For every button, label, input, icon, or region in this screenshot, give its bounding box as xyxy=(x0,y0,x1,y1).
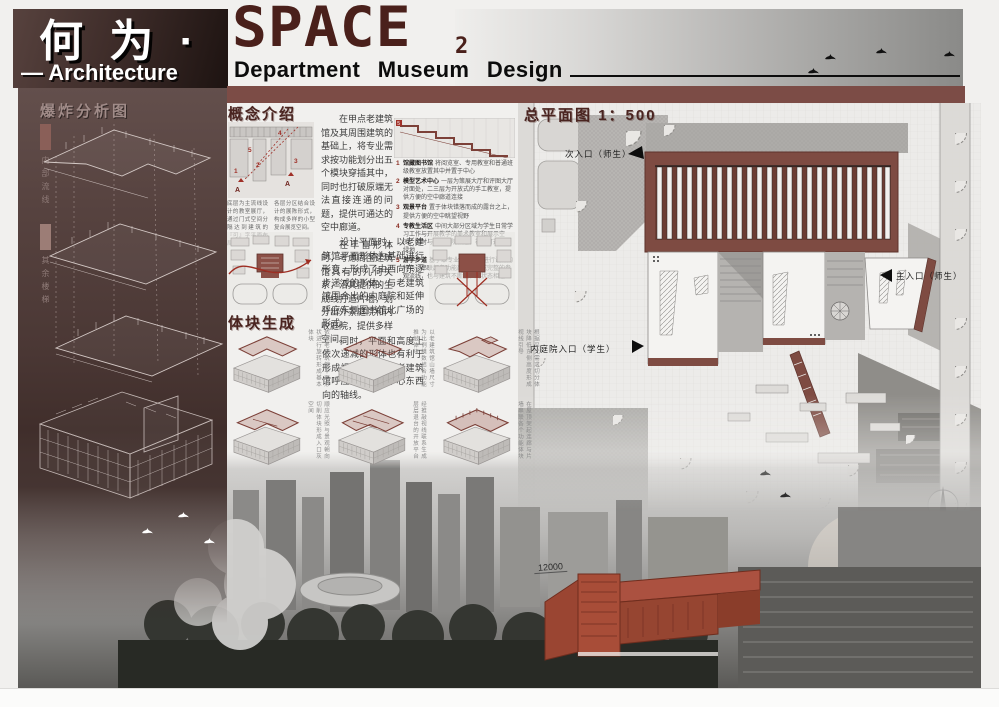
massing-step-4: 顺应光照与景观朝向切削体块形成入口灰空间 xyxy=(227,401,330,467)
massing-step-1: 依照老建筑馆平面形状进行旋转形成基本体块 xyxy=(227,329,330,395)
page-title-en: SPACE xyxy=(232,0,412,55)
massing-step-3: 根据采光需求切分体块降低东侧高度形成视线引导 xyxy=(437,329,540,395)
concept-section: 概念介绍 1 2 3 4 5 A A xyxy=(227,103,517,471)
section-marker: 5 xyxy=(248,147,252,154)
white-birds xyxy=(130,500,270,570)
concept-heading: 概念介绍 xyxy=(228,103,296,124)
main-entrance-label: 主入口（师生） xyxy=(896,271,963,281)
header-maroon-band xyxy=(227,86,965,103)
subtitle-museum-design: Department Museum Design xyxy=(234,57,563,83)
massing-step-5: 经推敲视线联系生成层层退台的开放平台 xyxy=(332,401,435,467)
section-cut-label: A xyxy=(235,187,240,194)
massing-step-2: 以老建筑馆山墙尺寸为比例模数结合功能推敲体块 xyxy=(332,329,435,395)
massing-step-6: 在屋顶架起连廊与片墙串联各个功能体块 xyxy=(437,401,540,467)
title-block: 何 为 · — Architecture xyxy=(13,9,228,88)
list-item: 1 馆藏图书馆将阅览室、专用教室和普通班级教室放置其中并置于中心 xyxy=(396,160,516,176)
section-diagram: 1 2 3 4 5 A A xyxy=(228,122,314,198)
exploded-analysis-panel: 爆炸分析图 内部流线 其余楼梯 xyxy=(18,88,227,658)
secondary-entrance-label: 次入口（师生） xyxy=(565,149,632,159)
campus-plan-diagram-right xyxy=(429,232,515,310)
subtitle-architecture: — Architecture xyxy=(21,60,178,86)
siteplan-heading: 总平面图 1：500 xyxy=(524,104,657,125)
presentation-board: 何 为 · — Architecture SPACE 2 Department … xyxy=(0,0,999,707)
exploded-axonometric-diagram xyxy=(26,116,226,556)
section-marker: 2 xyxy=(256,162,260,169)
list-item: 3 观景平台置于体块错落而成的露台之上，提供方便的空中眺望视野 xyxy=(396,204,516,220)
section-marker: 3 xyxy=(294,158,298,165)
page-title-index: 2 xyxy=(455,34,468,59)
section-marker: 1 xyxy=(234,168,238,175)
site-plan: 次入口（师生） 主入口（师生） 内庭院入口（学生） xyxy=(518,103,981,520)
massing-grid: 依照老建筑馆平面形状进行旋转形成基本体块 以老建筑馆山墙尺寸为比例模数结合功能推… xyxy=(227,329,519,467)
section-cut-label: A xyxy=(285,181,290,188)
section-marker: 4 xyxy=(278,130,282,137)
paragraph: 设计平面时，以老建筑馆平面形体为基础进行形变，形成了由西向东逐步递减的形体，与老… xyxy=(322,236,424,331)
step-marker: 5 xyxy=(397,121,400,127)
bottom-margin xyxy=(0,688,999,707)
roof-skylights xyxy=(655,166,891,240)
stepped-section-diagram: 5 xyxy=(394,118,515,158)
paragraph: 在甲点老建筑馆及其周围建筑的基础上，将专业需求按功能划分出五个模块穿插其中，同时… xyxy=(321,113,393,235)
courtyard-entrance-label: 内庭院入口（学生） xyxy=(530,344,616,354)
campus-plan-diagram-left xyxy=(227,232,313,310)
list-item: 2 模型艺术中心一层为策展大厅和评图大厅对面处，二三层为开放式的手工教室，提供方… xyxy=(396,178,516,202)
dimension-label: 12000 xyxy=(534,561,568,574)
